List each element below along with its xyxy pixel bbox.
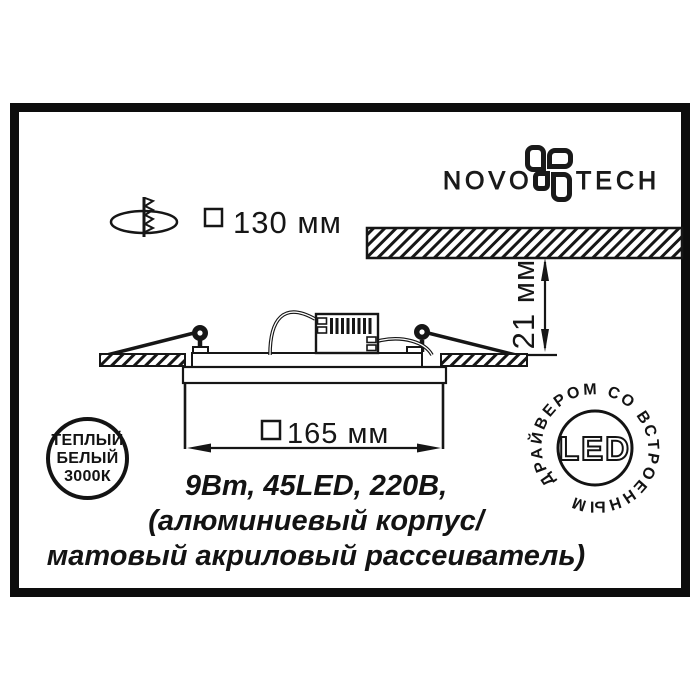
flower-petal [533, 171, 550, 191]
spec-line-2: (алюминиевый корпус/ [10, 504, 622, 539]
trim-flange-left [100, 354, 185, 366]
warm-badge-line-2: БЕЛЫЙ [56, 450, 118, 468]
body-bezel [183, 367, 446, 383]
recess-depth-label: 21 мм [506, 244, 540, 364]
spec-line-3: матовый акриловый рассеиватель) [10, 539, 622, 574]
novotech-flower-icon [520, 140, 580, 206]
driver-box [316, 314, 378, 353]
led-badge-label: LED [559, 430, 631, 467]
mounting-plate [192, 353, 422, 367]
warm-white-badge: ТЕПЛЫЙ БЕЛЫЙ 3000К [46, 417, 129, 500]
logo-text-tech: TECH [576, 167, 660, 196]
screw-in-hole-icon [111, 197, 177, 237]
square-symbol-icon [205, 209, 222, 226]
cutout-dimension-label: 130 мм [233, 205, 342, 241]
flower-petal [525, 145, 546, 172]
body-width-label: 165 мм [287, 418, 389, 451]
flower-petal [551, 172, 572, 202]
warm-badge-line-1: ТЕПЛЫЙ [51, 432, 123, 450]
technical-drawing: LED ДРАЙВЕРОМ СО ВСТРОЕННЫМ [0, 0, 700, 700]
flower-petal [547, 148, 573, 169]
product-spec-diagram: LED ДРАЙВЕРОМ СО ВСТРОЕННЫМ 130 мм 21 мм… [0, 0, 700, 700]
square-symbol-icon [262, 421, 280, 439]
spring-clip-left [103, 331, 202, 356]
warm-badge-line-3: 3000К [64, 468, 111, 486]
